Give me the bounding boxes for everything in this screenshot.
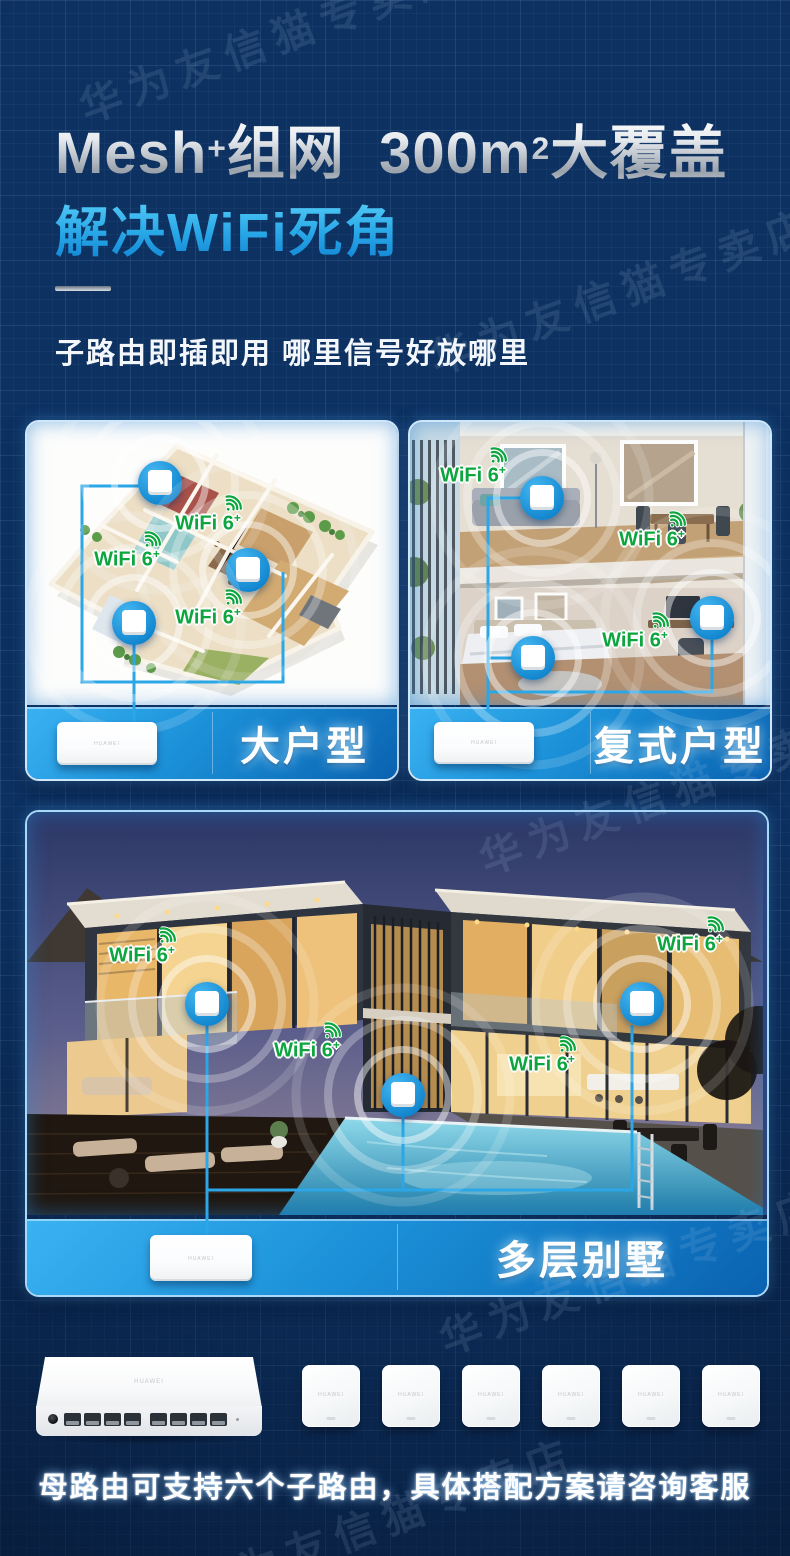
power-port	[48, 1414, 58, 1424]
lan-port	[170, 1413, 187, 1426]
mother-router-top-face: HUAWEI	[36, 1357, 262, 1408]
reset-hole	[236, 1418, 239, 1421]
lan-port	[124, 1413, 141, 1426]
card-label: 多层别墅	[397, 1228, 767, 1286]
router-node	[520, 476, 564, 520]
child-router-icon	[511, 636, 555, 680]
child-router-icon	[690, 596, 734, 640]
wifi6-badge: WiFi 6+	[657, 932, 723, 957]
divider-line	[55, 286, 111, 291]
child-router-icon	[112, 601, 156, 645]
lan-port	[84, 1413, 101, 1426]
status-led	[567, 1417, 576, 1420]
child-router-icon	[185, 982, 229, 1026]
card-label-strip: 多层别墅	[27, 1219, 767, 1295]
child-router-panel: HUAWEI	[622, 1365, 680, 1427]
wifi6-badge: WiFi 6+	[274, 1038, 340, 1063]
child-router-icon	[520, 476, 564, 520]
status-led	[727, 1417, 736, 1420]
mother-router-front-face	[36, 1406, 262, 1436]
promo-page: 华为友信猫专卖店 华为友信猫专卖店 华为友信猫专卖店 华为友信猫专卖店 华为友信…	[0, 0, 790, 1556]
child-router-icon	[620, 982, 664, 1026]
router-node	[620, 982, 664, 1026]
brand-label: HUAWEI	[36, 1379, 262, 1385]
footer-caption: 母路由可支持六个子路由，具体搭配方案请咨询客服	[0, 1464, 790, 1506]
router-node	[511, 636, 555, 680]
card-label: 复式户型	[590, 714, 770, 772]
title-superscript-plus: +	[207, 130, 227, 166]
lan-port	[190, 1413, 207, 1426]
status-led	[487, 1417, 496, 1420]
child-router-panel: HUAWEI	[462, 1365, 520, 1427]
child-router-panel: HUAWEI	[382, 1365, 440, 1427]
lan-port	[104, 1413, 121, 1426]
wifi6-badge: WiFi 6+	[109, 943, 175, 968]
card-large-home: WiFi 6+ WiFi 6+ WiFi 6+ 大户型 HUAWEI	[25, 420, 399, 781]
card-villa: WiFi 6+ WiFi 6+ WiFi 6+ WiFi 6+ 多层别墅 HUA…	[25, 810, 769, 1297]
lan-port	[150, 1413, 167, 1426]
wifi6-badge: WiFi 6+	[602, 628, 668, 653]
router-node	[690, 596, 734, 640]
wifi6-badge: WiFi 6+	[440, 463, 506, 488]
mother-router-thumbnail: HUAWEI	[57, 722, 157, 765]
page-subtitle: 解决WiFi死角	[55, 188, 400, 267]
router-node	[112, 601, 156, 645]
router-node	[185, 982, 229, 1026]
card-duplex-home: WiFi 6+ WiFi 6+ WiFi 6+ 复式户型 HUAWEI	[408, 420, 772, 781]
page-title: Mesh+组网 300m2大覆盖	[55, 106, 727, 190]
status-led	[407, 1417, 416, 1420]
mother-router-product: HUAWEI	[36, 1357, 262, 1436]
mother-router-thumbnail: HUAWEI	[434, 722, 534, 764]
router-node	[381, 1073, 425, 1117]
title-superscript-2: 2	[531, 130, 550, 166]
floorplan-image	[27, 422, 397, 705]
mother-router-thumbnail: HUAWEI	[150, 1235, 252, 1281]
tagline-text: 子路由即插即用 哪里信号好放哪里	[55, 330, 530, 372]
wifi6-badge: WiFi 6+	[175, 605, 241, 630]
status-led	[327, 1417, 336, 1420]
child-router-panel: HUAWEI	[542, 1365, 600, 1427]
child-router-icon	[381, 1073, 425, 1117]
child-router-panel: HUAWEI	[702, 1365, 760, 1427]
router-node	[138, 461, 182, 505]
wifi6-badge: WiFi 6+	[509, 1052, 575, 1077]
card-label: 大户型	[212, 714, 397, 772]
child-router-icon	[138, 461, 182, 505]
child-router-panel: HUAWEI	[302, 1365, 360, 1427]
lan-port	[64, 1413, 81, 1426]
wifi6-badge: WiFi 6+	[619, 527, 685, 552]
wifi6-badge: WiFi 6+	[175, 511, 241, 536]
wifi6-badge: WiFi 6+	[94, 547, 160, 572]
status-led	[647, 1417, 656, 1420]
lan-port	[210, 1413, 227, 1426]
